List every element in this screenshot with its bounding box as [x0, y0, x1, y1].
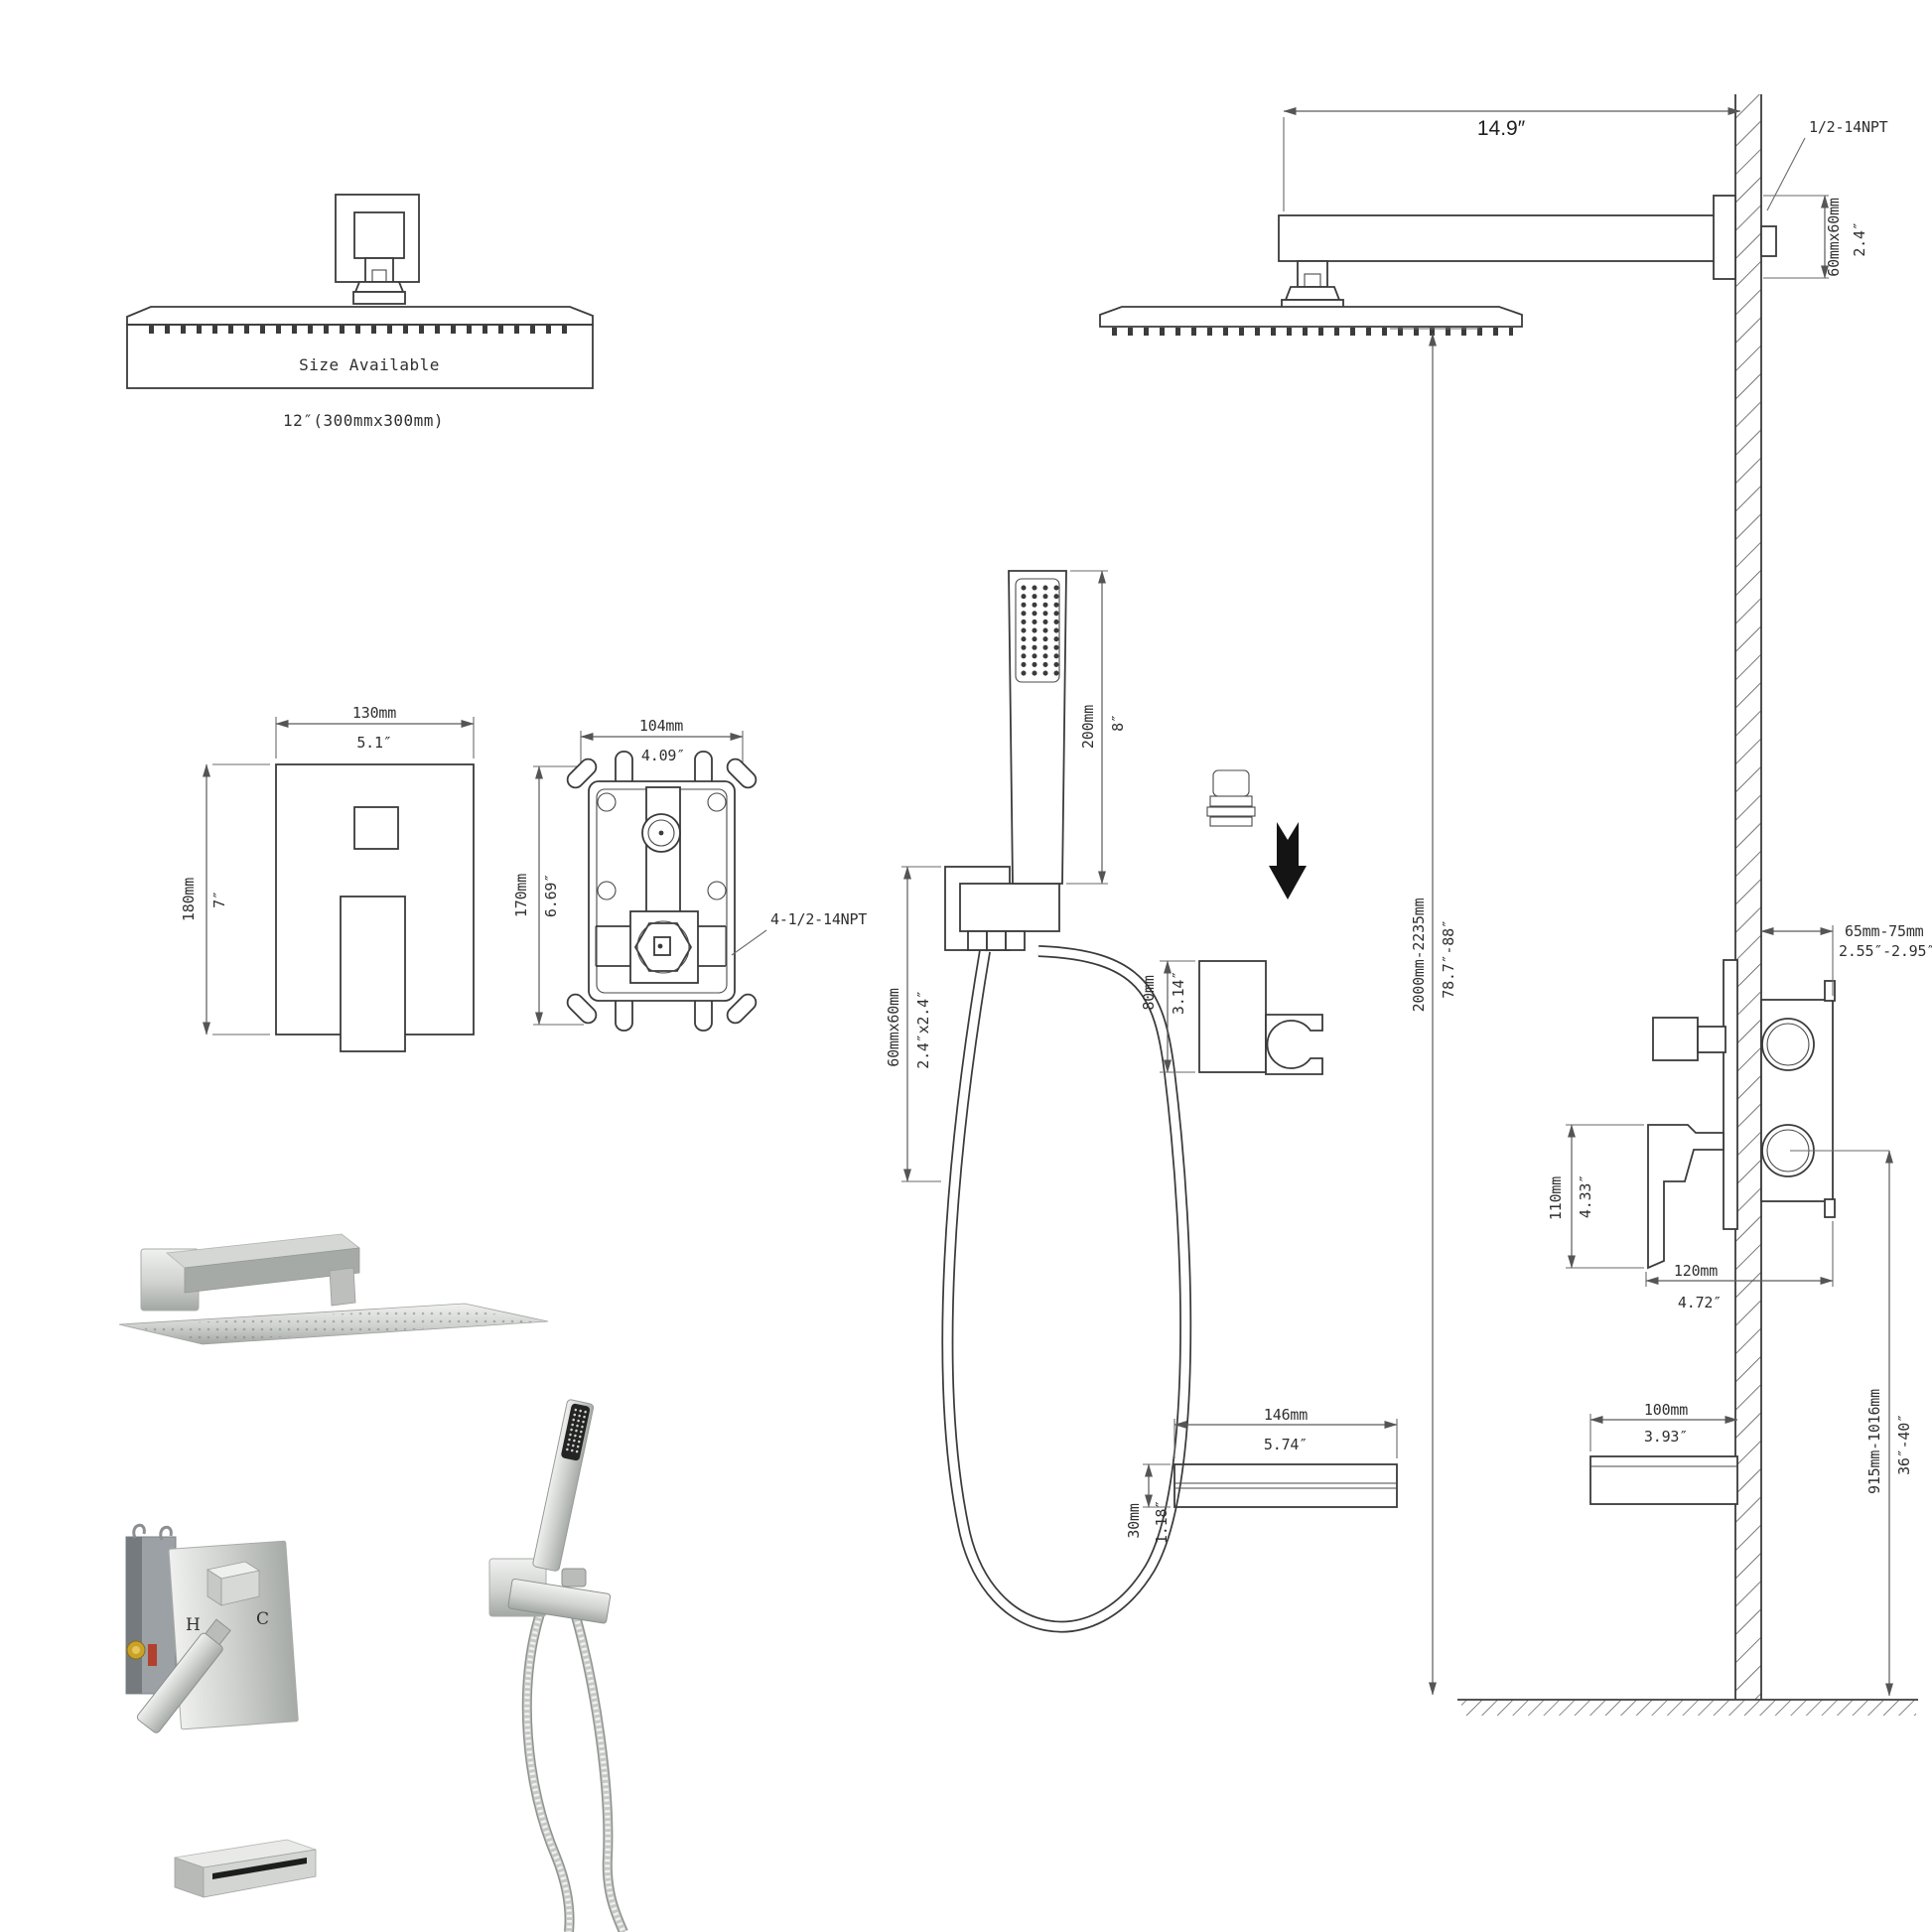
- handheld-wand: [1009, 571, 1066, 884]
- mixer-knob-upper: [1762, 1019, 1814, 1070]
- floor: [1457, 1700, 1918, 1716]
- dim-spoutlen-in: 3.93″: [1644, 1428, 1688, 1446]
- arm-thread-label: 1/2-14NPT: [1809, 118, 1888, 136]
- dim-spouttop-h-mm: 30mm: [1125, 1503, 1143, 1538]
- showerhead-top-drawing: Size Available 12″(300mmx300mm): [127, 195, 593, 430]
- hand-shower-drawing: 200mm 8″ 60mmx60mm 2.4″x2.4″ 80mm 3.14″: [885, 571, 1322, 1627]
- wand-holder-bar: [960, 884, 1059, 931]
- height-dimension: 2000mm-2235mm 78.7″-88″: [1390, 329, 1479, 1695]
- hose-nut-2: [987, 931, 1006, 950]
- dim-depth-in: 2.55″-2.95″: [1839, 942, 1932, 960]
- dim-plate-w-in: 5.1″: [356, 734, 391, 752]
- render-brass-port-inner: [132, 1646, 140, 1654]
- render-ball-joint: [330, 1268, 355, 1306]
- hot-label: H: [186, 1615, 201, 1635]
- arm-head-sheet: [1100, 307, 1522, 327]
- floor-hatch: [1461, 1700, 1916, 1716]
- lever-handle-side: [1648, 1125, 1724, 1268]
- plate-handle: [341, 897, 405, 1051]
- arm-cone: [1286, 287, 1339, 300]
- hose-outline: [947, 951, 1185, 1627]
- diverter-knob-side: [1653, 1018, 1698, 1060]
- dim-spoutheight-mm: 915mm-1016mm: [1865, 1389, 1883, 1494]
- render-roughin-side: [126, 1537, 142, 1694]
- dim-valve-w-in: 4.09″: [641, 747, 685, 764]
- dim-plate-h-in: 7″: [210, 891, 228, 908]
- dim-flange-in: 2.4″: [1851, 221, 1868, 256]
- dim-height-in: 78.7″-88″: [1440, 919, 1457, 998]
- diverter-button: [354, 807, 398, 849]
- valve-stem-dot: [658, 944, 663, 949]
- dim-plate-w-mm: 130mm: [352, 704, 396, 722]
- size-available-label: Size Available: [299, 355, 440, 374]
- rough-valve-drawing: 104mm 4.09″ 170mm 6.69″: [512, 717, 867, 1031]
- valve-thread-leader: [732, 930, 766, 955]
- dim-spouttop-h-in: 1.18″: [1153, 1500, 1171, 1544]
- valve-thread-label: 4-1/2-14NPT: [770, 910, 867, 928]
- dim-holder-in: 3.14″: [1170, 971, 1187, 1015]
- wall-hatch: [1735, 94, 1761, 1700]
- dim-handle-mm: 110mm: [1547, 1176, 1565, 1220]
- dim-outlet-mm: 60mmx60mm: [885, 988, 902, 1067]
- arm-thread-leader: [1767, 138, 1805, 210]
- technical-drawing-canvas: Size Available 12″(300mmx300mm) 14.9″ 60…: [0, 0, 1932, 1932]
- mixer-tab-bottom: [1825, 1199, 1835, 1217]
- dim-flange-mm: 60mmx60mm: [1825, 198, 1843, 277]
- spout-top-drawing: 146mm 5.74″ 30mm 1.18″: [1125, 1406, 1397, 1544]
- shower-arm: [1279, 215, 1735, 261]
- holder-hook: [1266, 1015, 1322, 1074]
- render-arm-head: [119, 1234, 548, 1344]
- arm-wall-drawing: 14.9″ 60mmx60mm 2.4″ 1/2-14NPT: [1100, 94, 1888, 1700]
- connector-ring-1: [1210, 796, 1252, 806]
- connector-cap: [1213, 770, 1249, 796]
- dim-handle-in: 4.33″: [1577, 1174, 1594, 1218]
- head-cone-lip: [353, 292, 405, 304]
- dim-arm-length: 14.9″: [1477, 117, 1526, 140]
- dim-wand-mm: 200mm: [1079, 705, 1097, 749]
- mixer-trim-plate-side: [1724, 960, 1737, 1229]
- hose-fill: [947, 951, 1185, 1627]
- dim-holder-mm: 80mm: [1140, 975, 1158, 1010]
- dim-spoutlen-mm: 100mm: [1644, 1401, 1688, 1419]
- head-sheet: [127, 307, 593, 325]
- dim-trim-mm: 120mm: [1674, 1262, 1718, 1280]
- render-hand-shower: [489, 1399, 623, 1932]
- spout-top-body: [1174, 1464, 1397, 1507]
- dim-plate-h-mm: 180mm: [180, 878, 198, 921]
- thread-nipple: [1761, 226, 1776, 256]
- diverter-stem-side: [1698, 1027, 1725, 1052]
- hose-nut-1: [968, 931, 987, 950]
- dim-valve-h-in: 6.69″: [542, 874, 560, 917]
- hose-nut-3: [1006, 931, 1025, 950]
- render-valve-trim: H C: [126, 1525, 298, 1734]
- cold-label: C: [256, 1609, 269, 1629]
- head-cone: [355, 282, 403, 292]
- render-hook-wire-1: [134, 1525, 145, 1538]
- dim-outlet-in: 2.4″x2.4″: [914, 990, 932, 1068]
- render-waterfall-spout: [175, 1840, 316, 1897]
- valve-top-port-dot: [659, 831, 664, 836]
- render-holder-arm: [508, 1579, 611, 1623]
- dim-spouttop-w-in: 5.74″: [1264, 1436, 1308, 1453]
- dim-height-mm: 2000mm-2235mm: [1410, 897, 1428, 1012]
- holder-bracket: [1199, 961, 1266, 1072]
- dim-valve-w-mm: 104mm: [639, 717, 683, 735]
- trim-plate-drawing: 130mm 5.1″ 180mm 7″: [180, 704, 474, 1051]
- mount-bracket-inner: [354, 212, 404, 258]
- render-wand-connector: [562, 1569, 586, 1587]
- insert-arrow-icon: [1269, 822, 1307, 899]
- dim-wand-in: 8″: [1109, 714, 1127, 732]
- dim-spoutheight-in: 36″-40″: [1895, 1414, 1913, 1475]
- tub-spout-side: [1590, 1456, 1737, 1504]
- connector-ring-3: [1210, 817, 1252, 826]
- dim-depth-mm: 65mm-75mm: [1845, 922, 1924, 940]
- wall-flange: [1714, 196, 1735, 279]
- dim-trim-in: 4.72″: [1678, 1294, 1722, 1311]
- connector-ring-2: [1207, 807, 1255, 816]
- dim-valve-h-mm: 170mm: [512, 874, 530, 917]
- render-hose-2-edge: [576, 1616, 623, 1932]
- head-size-note: 12″(300mmx300mm): [283, 411, 444, 430]
- render-warning-sticker: [148, 1644, 157, 1666]
- dim-spouttop-w-mm: 146mm: [1264, 1406, 1308, 1424]
